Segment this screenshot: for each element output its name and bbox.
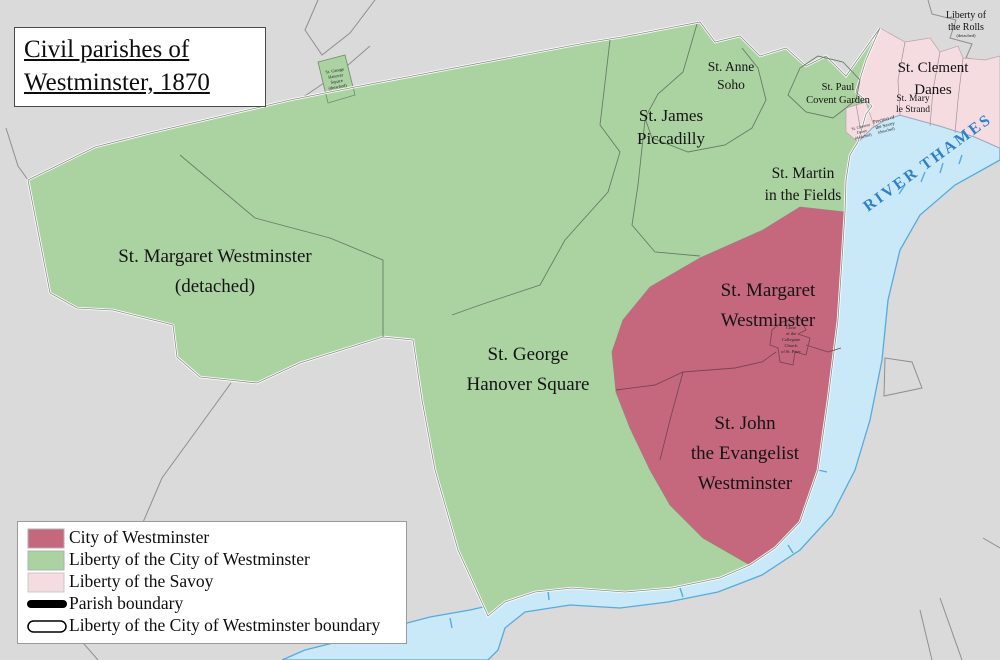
label-st-mary-2: le Strand bbox=[896, 105, 930, 115]
legend-row-liberty: Liberty of the City of Westminster bbox=[25, 549, 399, 571]
legend-label-parish-boundary: Parish boundary bbox=[69, 595, 183, 613]
label-st-james: St. James bbox=[639, 106, 703, 125]
legend-symbol-parish-boundary bbox=[25, 593, 69, 615]
label-liberty-rolls-2: the Rolls bbox=[948, 22, 984, 33]
legend: City of Westminster Liberty of the City … bbox=[17, 521, 407, 644]
legend-symbol-liberty-boundary bbox=[25, 615, 69, 637]
map-screenshot: St. Margaret Westminster (detached) St. … bbox=[0, 0, 1000, 660]
label-st-george: St. George bbox=[488, 344, 569, 365]
legend-label-city: City of Westminster bbox=[69, 529, 209, 547]
label-abbey-close-tiny-3: Collegiate bbox=[782, 337, 800, 342]
label-st-margaret-detached-2: (detached) bbox=[175, 276, 255, 297]
legend-label-liberty: Liberty of the City of Westminster bbox=[69, 551, 310, 569]
legend-swatch-liberty-green bbox=[25, 549, 69, 571]
label-st-margaret-detached: St. Margaret Westminster bbox=[118, 246, 312, 267]
label-abbey-close-tiny-4: Church bbox=[785, 343, 799, 348]
label-st-anne-2: Soho bbox=[717, 77, 745, 92]
label-abbey-close-tiny-2: of the bbox=[786, 331, 796, 336]
label-st-paul-2: Covent Garden bbox=[806, 95, 871, 106]
label-st-paul: St. Paul bbox=[822, 82, 855, 93]
label-st-clement: St. Clement bbox=[898, 60, 970, 76]
legend-row-parish-boundary: Parish boundary bbox=[25, 593, 399, 615]
label-liberty-rolls: Liberty of bbox=[946, 10, 987, 21]
label-st-martin-2: in the Fields bbox=[765, 187, 842, 204]
label-st-margaret-2: Westminster bbox=[721, 310, 816, 331]
label-liberty-rolls-3: (detached) bbox=[957, 33, 976, 38]
label-st-mary: St. Mary bbox=[896, 94, 930, 104]
map-title-box: Civil parishes of Westminster, 1870 bbox=[14, 27, 266, 107]
label-st-john-3: Westminster bbox=[698, 473, 793, 494]
label-abbey-close-tiny-5: of St. Peter bbox=[781, 349, 801, 354]
legend-row-liberty-boundary: Liberty of the City of Westminster bound… bbox=[25, 615, 399, 637]
legend-swatch-savoy-pink bbox=[25, 571, 69, 593]
legend-row-city: City of Westminster bbox=[25, 527, 399, 549]
label-st-john-2: the Evangelist bbox=[691, 443, 800, 464]
legend-row-savoy: Liberty of the Savoy bbox=[25, 571, 399, 593]
legend-label-savoy: Liberty of the Savoy bbox=[69, 573, 213, 591]
label-st-george-2: Hanover Square bbox=[467, 374, 590, 395]
map-title-line2: Westminster, 1870 bbox=[24, 66, 256, 99]
map-title-line1: Civil parishes of bbox=[24, 33, 256, 66]
legend-swatch-city-red bbox=[25, 527, 69, 549]
label-st-anne: St. Anne bbox=[708, 59, 755, 74]
legend-label-liberty-boundary: Liberty of the City of Westminster bound… bbox=[69, 617, 380, 635]
label-st-martin: St. Martin bbox=[772, 165, 835, 182]
label-st-john: St. John bbox=[714, 413, 776, 434]
label-st-margaret: St. Margaret bbox=[721, 280, 816, 301]
label-st-james-2: Piccadilly bbox=[637, 129, 705, 148]
label-abbey-close-tiny: Close bbox=[786, 325, 796, 330]
